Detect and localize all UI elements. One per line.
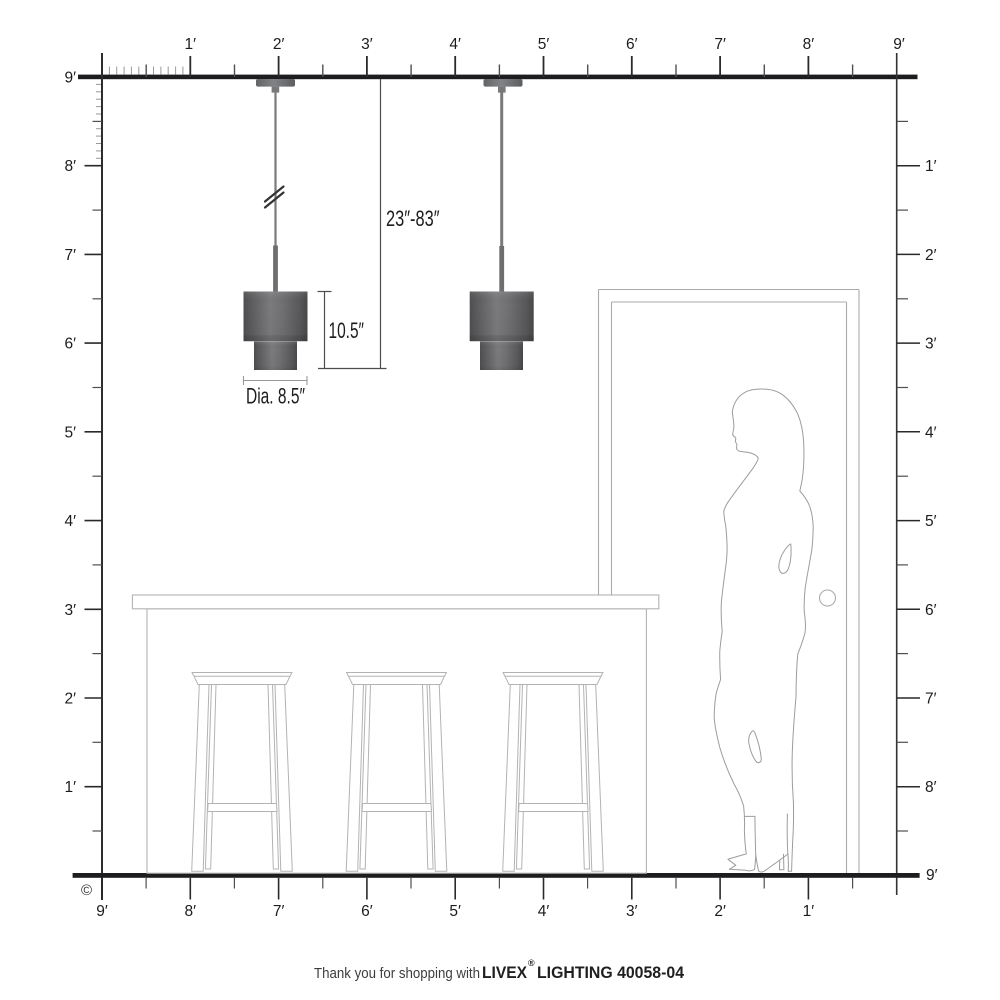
svg-text:Dia. 8.5″: Dia. 8.5″ — [246, 384, 305, 409]
svg-text:LIVEX: LIVEX — [482, 964, 527, 982]
svg-text:6′: 6′ — [361, 903, 373, 920]
svg-text:7′: 7′ — [925, 691, 937, 708]
svg-text:3′: 3′ — [64, 602, 76, 619]
svg-text:1′: 1′ — [185, 36, 197, 53]
svg-text:7′: 7′ — [273, 903, 285, 920]
svg-text:8′: 8′ — [64, 158, 76, 175]
svg-text:2′: 2′ — [925, 247, 937, 264]
svg-text:6′: 6′ — [925, 602, 937, 619]
svg-text:Thank you for shopping with: Thank you for shopping with — [314, 966, 480, 982]
svg-text:3′: 3′ — [361, 36, 373, 53]
svg-text:5′: 5′ — [64, 424, 76, 441]
svg-text:9′: 9′ — [893, 36, 905, 53]
svg-text:1′: 1′ — [803, 903, 815, 920]
svg-text:4′: 4′ — [925, 424, 937, 441]
svg-text:10.5″: 10.5″ — [329, 318, 365, 343]
svg-text:3′: 3′ — [925, 336, 937, 353]
svg-text:9′: 9′ — [64, 70, 76, 87]
svg-text:1′: 1′ — [64, 779, 76, 796]
svg-text:23″-83″: 23″-83″ — [386, 206, 440, 231]
svg-text:8′: 8′ — [925, 779, 937, 796]
svg-text:®: ® — [528, 958, 535, 968]
svg-text:9′: 9′ — [96, 903, 108, 920]
svg-text:4′: 4′ — [538, 903, 550, 920]
svg-text:5′: 5′ — [449, 903, 461, 920]
svg-text:5′: 5′ — [538, 36, 550, 53]
svg-text:9′: 9′ — [926, 867, 938, 884]
svg-text:1′: 1′ — [925, 158, 937, 175]
svg-text:6′: 6′ — [64, 336, 76, 353]
svg-text:6′: 6′ — [626, 36, 638, 53]
svg-text:4′: 4′ — [449, 36, 461, 53]
svg-text:7′: 7′ — [64, 247, 76, 264]
svg-text:8′: 8′ — [185, 903, 197, 920]
svg-text:©: © — [81, 882, 92, 899]
svg-text:2′: 2′ — [64, 691, 76, 708]
svg-text:5′: 5′ — [925, 513, 937, 530]
svg-text:8′: 8′ — [803, 36, 815, 53]
svg-text:LIGHTING 40058-04: LIGHTING 40058-04 — [537, 964, 685, 982]
svg-text:4′: 4′ — [64, 513, 76, 530]
svg-text:2′: 2′ — [273, 36, 285, 53]
svg-text:2′: 2′ — [714, 903, 726, 920]
svg-text:3′: 3′ — [626, 903, 638, 920]
svg-text:7′: 7′ — [714, 36, 726, 53]
